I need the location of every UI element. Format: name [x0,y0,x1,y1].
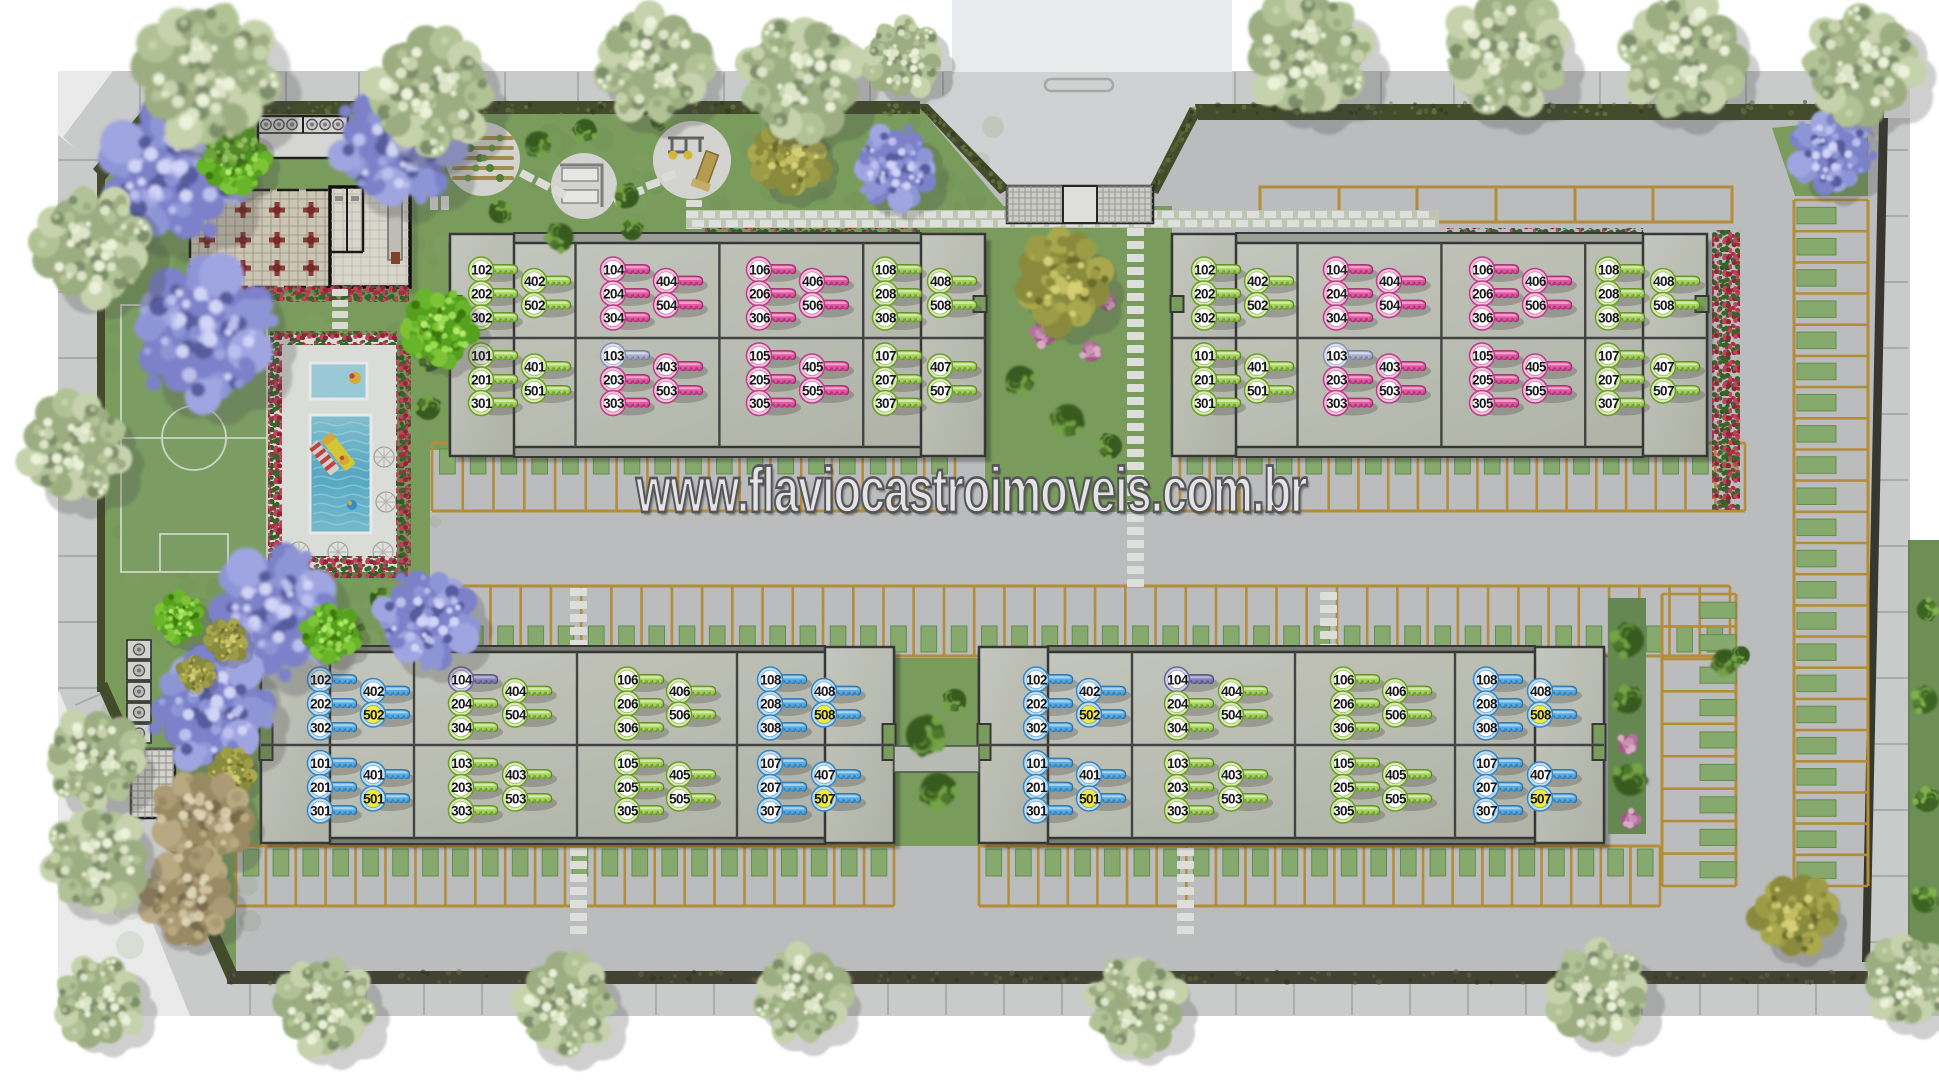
svg-text:307: 307 [760,803,781,818]
svg-text:308: 308 [1476,720,1498,735]
svg-text:303: 303 [1167,803,1189,818]
svg-text:307: 307 [875,396,896,411]
svg-text:508: 508 [1530,707,1552,722]
svg-text:404: 404 [656,274,678,289]
svg-text:501: 501 [1247,383,1269,398]
svg-text:402: 402 [363,684,384,699]
svg-text:102: 102 [1194,262,1215,277]
svg-text:504: 504 [656,298,678,313]
svg-text:107: 107 [1476,756,1497,771]
svg-text:104: 104 [1326,262,1348,277]
svg-text:203: 203 [1167,780,1189,795]
svg-text:508: 508 [1653,298,1675,313]
svg-text:305: 305 [617,803,639,818]
svg-text:308: 308 [875,310,897,325]
svg-text:408: 408 [1530,684,1552,699]
svg-text:103: 103 [1326,348,1348,363]
svg-text:403: 403 [505,767,527,782]
svg-text:202: 202 [310,696,331,711]
svg-text:302: 302 [1026,720,1047,735]
svg-text:101: 101 [1194,348,1216,363]
svg-text:205: 205 [617,780,639,795]
svg-text:501: 501 [524,383,546,398]
svg-text:103: 103 [603,348,625,363]
svg-text:401: 401 [363,767,385,782]
svg-text:208: 208 [760,696,782,711]
svg-text:408: 408 [930,274,952,289]
svg-text:101: 101 [310,756,332,771]
svg-text:304: 304 [451,720,473,735]
svg-text:105: 105 [1333,756,1355,771]
svg-text:506: 506 [669,707,691,722]
svg-text:503: 503 [1379,383,1401,398]
svg-text:203: 203 [1326,372,1348,387]
svg-text:408: 408 [814,684,836,699]
svg-text:403: 403 [656,359,678,374]
svg-text:308: 308 [1598,310,1620,325]
svg-text:102: 102 [471,262,492,277]
svg-text:204: 204 [603,286,625,301]
svg-text:301: 301 [1194,396,1216,411]
svg-text:205: 205 [1472,372,1494,387]
svg-text:406: 406 [669,684,691,699]
svg-text:307: 307 [1476,803,1497,818]
svg-text:306: 306 [1472,310,1494,325]
svg-text:403: 403 [1379,359,1401,374]
svg-text:507: 507 [814,791,835,806]
svg-text:305: 305 [749,396,771,411]
svg-text:103: 103 [451,756,473,771]
svg-text:402: 402 [1079,684,1100,699]
svg-text:204: 204 [451,696,473,711]
svg-text:502: 502 [363,707,384,722]
svg-text:508: 508 [814,707,836,722]
svg-text:401: 401 [1247,359,1269,374]
svg-text:401: 401 [524,359,546,374]
svg-text:201: 201 [1194,372,1216,387]
svg-text:304: 304 [603,310,625,325]
svg-text:306: 306 [749,310,771,325]
svg-text:404: 404 [1379,274,1401,289]
svg-text:108: 108 [760,672,782,687]
svg-text:208: 208 [1476,696,1498,711]
svg-text:301: 301 [471,396,493,411]
svg-text:402: 402 [524,274,545,289]
svg-text:205: 205 [1333,780,1355,795]
svg-text:505: 505 [1525,383,1547,398]
svg-text:304: 304 [1326,310,1348,325]
svg-text:408: 408 [1653,274,1675,289]
svg-text:407: 407 [1653,359,1674,374]
svg-text:306: 306 [1333,720,1355,735]
svg-text:302: 302 [1194,310,1215,325]
svg-text:104: 104 [1167,672,1189,687]
svg-text:107: 107 [1598,348,1619,363]
svg-text:303: 303 [451,803,473,818]
svg-text:106: 106 [1333,672,1355,687]
svg-text:405: 405 [1525,359,1547,374]
svg-text:204: 204 [1167,696,1189,711]
svg-text:303: 303 [1326,396,1348,411]
svg-text:502: 502 [1247,298,1268,313]
svg-text:507: 507 [1653,383,1674,398]
svg-text:201: 201 [310,780,332,795]
svg-text:302: 302 [310,720,331,735]
svg-text:503: 503 [656,383,678,398]
svg-text:506: 506 [1385,707,1407,722]
svg-text:203: 203 [451,780,473,795]
svg-text:107: 107 [875,348,896,363]
svg-text:504: 504 [1221,707,1243,722]
svg-text:103: 103 [1167,756,1189,771]
svg-text:405: 405 [1385,767,1407,782]
svg-text:106: 106 [1472,262,1494,277]
svg-text:407: 407 [930,359,951,374]
svg-text:207: 207 [1476,780,1497,795]
svg-text:307: 307 [1598,396,1619,411]
svg-text:105: 105 [749,348,771,363]
svg-text:201: 201 [1026,780,1048,795]
svg-text:108: 108 [1598,262,1620,277]
svg-text:505: 505 [1385,791,1407,806]
svg-text:301: 301 [310,803,332,818]
svg-text:501: 501 [363,791,385,806]
svg-text:308: 308 [760,720,782,735]
svg-text:504: 504 [505,707,527,722]
svg-text:202: 202 [1026,696,1047,711]
svg-text:206: 206 [1472,286,1494,301]
svg-text:206: 206 [617,696,639,711]
svg-text:208: 208 [1598,286,1620,301]
svg-text:405: 405 [669,767,691,782]
svg-text:107: 107 [760,756,781,771]
svg-text:106: 106 [617,672,639,687]
svg-text:506: 506 [802,298,824,313]
svg-text:404: 404 [1221,684,1243,699]
svg-text:504: 504 [1379,298,1401,313]
svg-text:503: 503 [1221,791,1243,806]
svg-text:505: 505 [802,383,824,398]
svg-text:207: 207 [875,372,896,387]
svg-text:202: 202 [471,286,492,301]
svg-text:203: 203 [603,372,625,387]
svg-text:405: 405 [802,359,824,374]
svg-text:505: 505 [669,791,691,806]
svg-text:106: 106 [749,262,771,277]
svg-text:202: 202 [1194,286,1215,301]
svg-text:501: 501 [1079,791,1101,806]
svg-text:105: 105 [1472,348,1494,363]
svg-text:105: 105 [617,756,639,771]
svg-text:502: 502 [1079,707,1100,722]
svg-text:402: 402 [1247,274,1268,289]
svg-text:208: 208 [875,286,897,301]
svg-text:406: 406 [1525,274,1547,289]
svg-text:301: 301 [1026,803,1048,818]
svg-text:406: 406 [1385,684,1407,699]
svg-text:102: 102 [1026,672,1047,687]
svg-text:108: 108 [875,262,897,277]
svg-text:207: 207 [1598,372,1619,387]
svg-text:503: 503 [505,791,527,806]
svg-text:508: 508 [930,298,952,313]
svg-text:407: 407 [814,767,835,782]
svg-text:407: 407 [1530,767,1551,782]
svg-text:305: 305 [1333,803,1355,818]
svg-text:506: 506 [1525,298,1547,313]
svg-text:205: 205 [749,372,771,387]
svg-text:305: 305 [1472,396,1494,411]
svg-text:303: 303 [603,396,625,411]
svg-text:104: 104 [603,262,625,277]
svg-text:108: 108 [1476,672,1498,687]
svg-text:404: 404 [505,684,527,699]
svg-text:507: 507 [1530,791,1551,806]
svg-text:507: 507 [930,383,951,398]
svg-text:206: 206 [1333,696,1355,711]
svg-text:206: 206 [749,286,771,301]
svg-text:403: 403 [1221,767,1243,782]
svg-text:401: 401 [1079,767,1101,782]
svg-text:101: 101 [1026,756,1048,771]
svg-text:406: 406 [802,274,824,289]
svg-text:201: 201 [471,372,493,387]
svg-text:207: 207 [760,780,781,795]
svg-text:306: 306 [617,720,639,735]
svg-text:304: 304 [1167,720,1189,735]
svg-text:204: 204 [1326,286,1348,301]
svg-text:502: 502 [524,298,545,313]
